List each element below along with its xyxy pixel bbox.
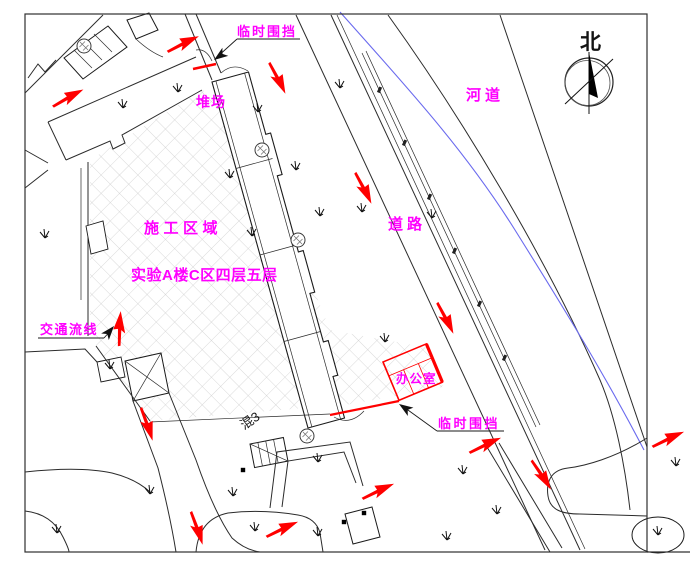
label-stack-yard: 堆场 xyxy=(196,94,226,110)
label-road: 道路 xyxy=(388,215,426,233)
grass-icon xyxy=(335,79,344,88)
small-building xyxy=(64,26,127,79)
label-construction-area: 施工区域 xyxy=(144,219,222,237)
leader-arrowhead-icon xyxy=(396,400,413,416)
tree-icon xyxy=(300,429,314,443)
tree-icon xyxy=(77,39,91,53)
post-marker xyxy=(362,511,366,515)
grass-icon xyxy=(653,526,662,535)
label-work-zone: 实验A楼C区四层五层 xyxy=(131,266,278,284)
grass-icon xyxy=(357,203,366,212)
road-lines xyxy=(296,15,585,550)
temporary-fence-line-top xyxy=(193,64,216,69)
post-marker xyxy=(342,520,346,524)
small-building xyxy=(127,13,158,39)
flow-arrow-icon xyxy=(164,33,201,55)
grass-icon xyxy=(173,83,182,92)
grass-icon xyxy=(118,99,127,108)
post-marker xyxy=(241,468,245,472)
site-plan-canvas: 临时围挡 堆场 河道 道路 施工区域 实验A楼C区四层五层 交通流线 办公室 临… xyxy=(0,0,693,570)
label-traffic-flow: 交通流线 xyxy=(40,322,98,337)
label-office: 办公室 xyxy=(396,371,437,386)
stairs xyxy=(250,438,288,468)
site-plan-svg: 临时围挡 堆场 河道 道路 施工区域 实验A楼C区四层五层 交通流线 办公室 临… xyxy=(0,0,693,570)
flow-arrow-icon xyxy=(49,86,86,110)
green-island xyxy=(196,511,323,552)
bottom-right-area xyxy=(487,438,684,553)
tree-icon xyxy=(291,233,305,247)
flow-arrow-icon xyxy=(266,59,289,96)
label-river: 河道 xyxy=(466,86,504,104)
grass-icon xyxy=(291,161,300,170)
grass-icon xyxy=(427,209,436,218)
green-island xyxy=(548,438,647,516)
label-temp-fence-bottom: 临时围挡 xyxy=(438,416,500,431)
grass-icon xyxy=(52,524,61,533)
tree-icon xyxy=(255,143,269,157)
grass-icon xyxy=(671,457,680,466)
label-temp-fence-top: 临时围挡 xyxy=(237,24,297,39)
grass-icon xyxy=(40,229,49,238)
grass-icon xyxy=(313,527,322,536)
river-bank-right xyxy=(500,15,647,447)
north-compass-icon: 北 xyxy=(565,31,613,114)
flow-arrow-icon xyxy=(649,428,686,450)
grass-icon xyxy=(228,487,237,496)
walkway xyxy=(487,443,562,552)
grass-icon xyxy=(442,531,451,540)
flow-arrow-icon xyxy=(263,518,300,540)
grass-icon xyxy=(492,505,501,514)
grass-icon xyxy=(250,522,259,531)
flow-arrow-icon xyxy=(359,480,396,502)
label-north: 北 xyxy=(580,31,601,54)
flow-arrow-icon xyxy=(352,169,375,206)
flow-arrow-icon xyxy=(466,434,503,456)
green-island xyxy=(25,511,69,552)
grass-icon xyxy=(313,453,322,462)
grass-icon xyxy=(315,207,324,216)
grass-icon xyxy=(458,465,467,474)
grass-icon xyxy=(145,485,154,494)
